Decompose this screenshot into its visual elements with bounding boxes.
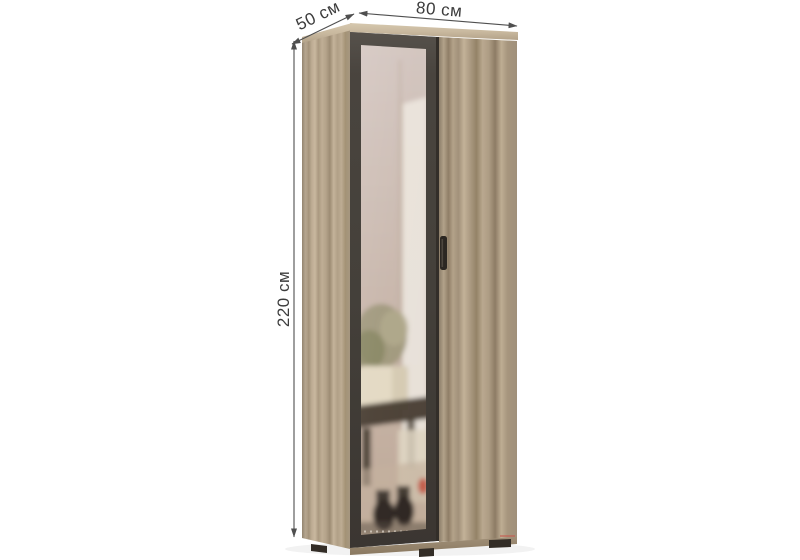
wardrobe-right-door-shade [439, 37, 517, 542]
door-gap [436, 37, 439, 541]
wardrobe-foot-right [489, 539, 511, 548]
wardrobe-side-panel-shade [302, 27, 350, 549]
wardrobe-foot-middle [419, 548, 434, 557]
mirror [353, 40, 434, 540]
height-dimension-label: 220 см [274, 271, 294, 327]
right-door-bottom-accent [500, 535, 515, 537]
door-handle-highlight [442, 239, 444, 267]
door-handle-bar [440, 236, 447, 270]
mirror-sheen [361, 45, 426, 535]
width-dimension-label: 80 см [415, 0, 463, 22]
wardrobe-render [0, 0, 800, 560]
door-handle [440, 236, 447, 270]
product-image-canvas: 50 см 80 см 220 см [0, 0, 800, 560]
